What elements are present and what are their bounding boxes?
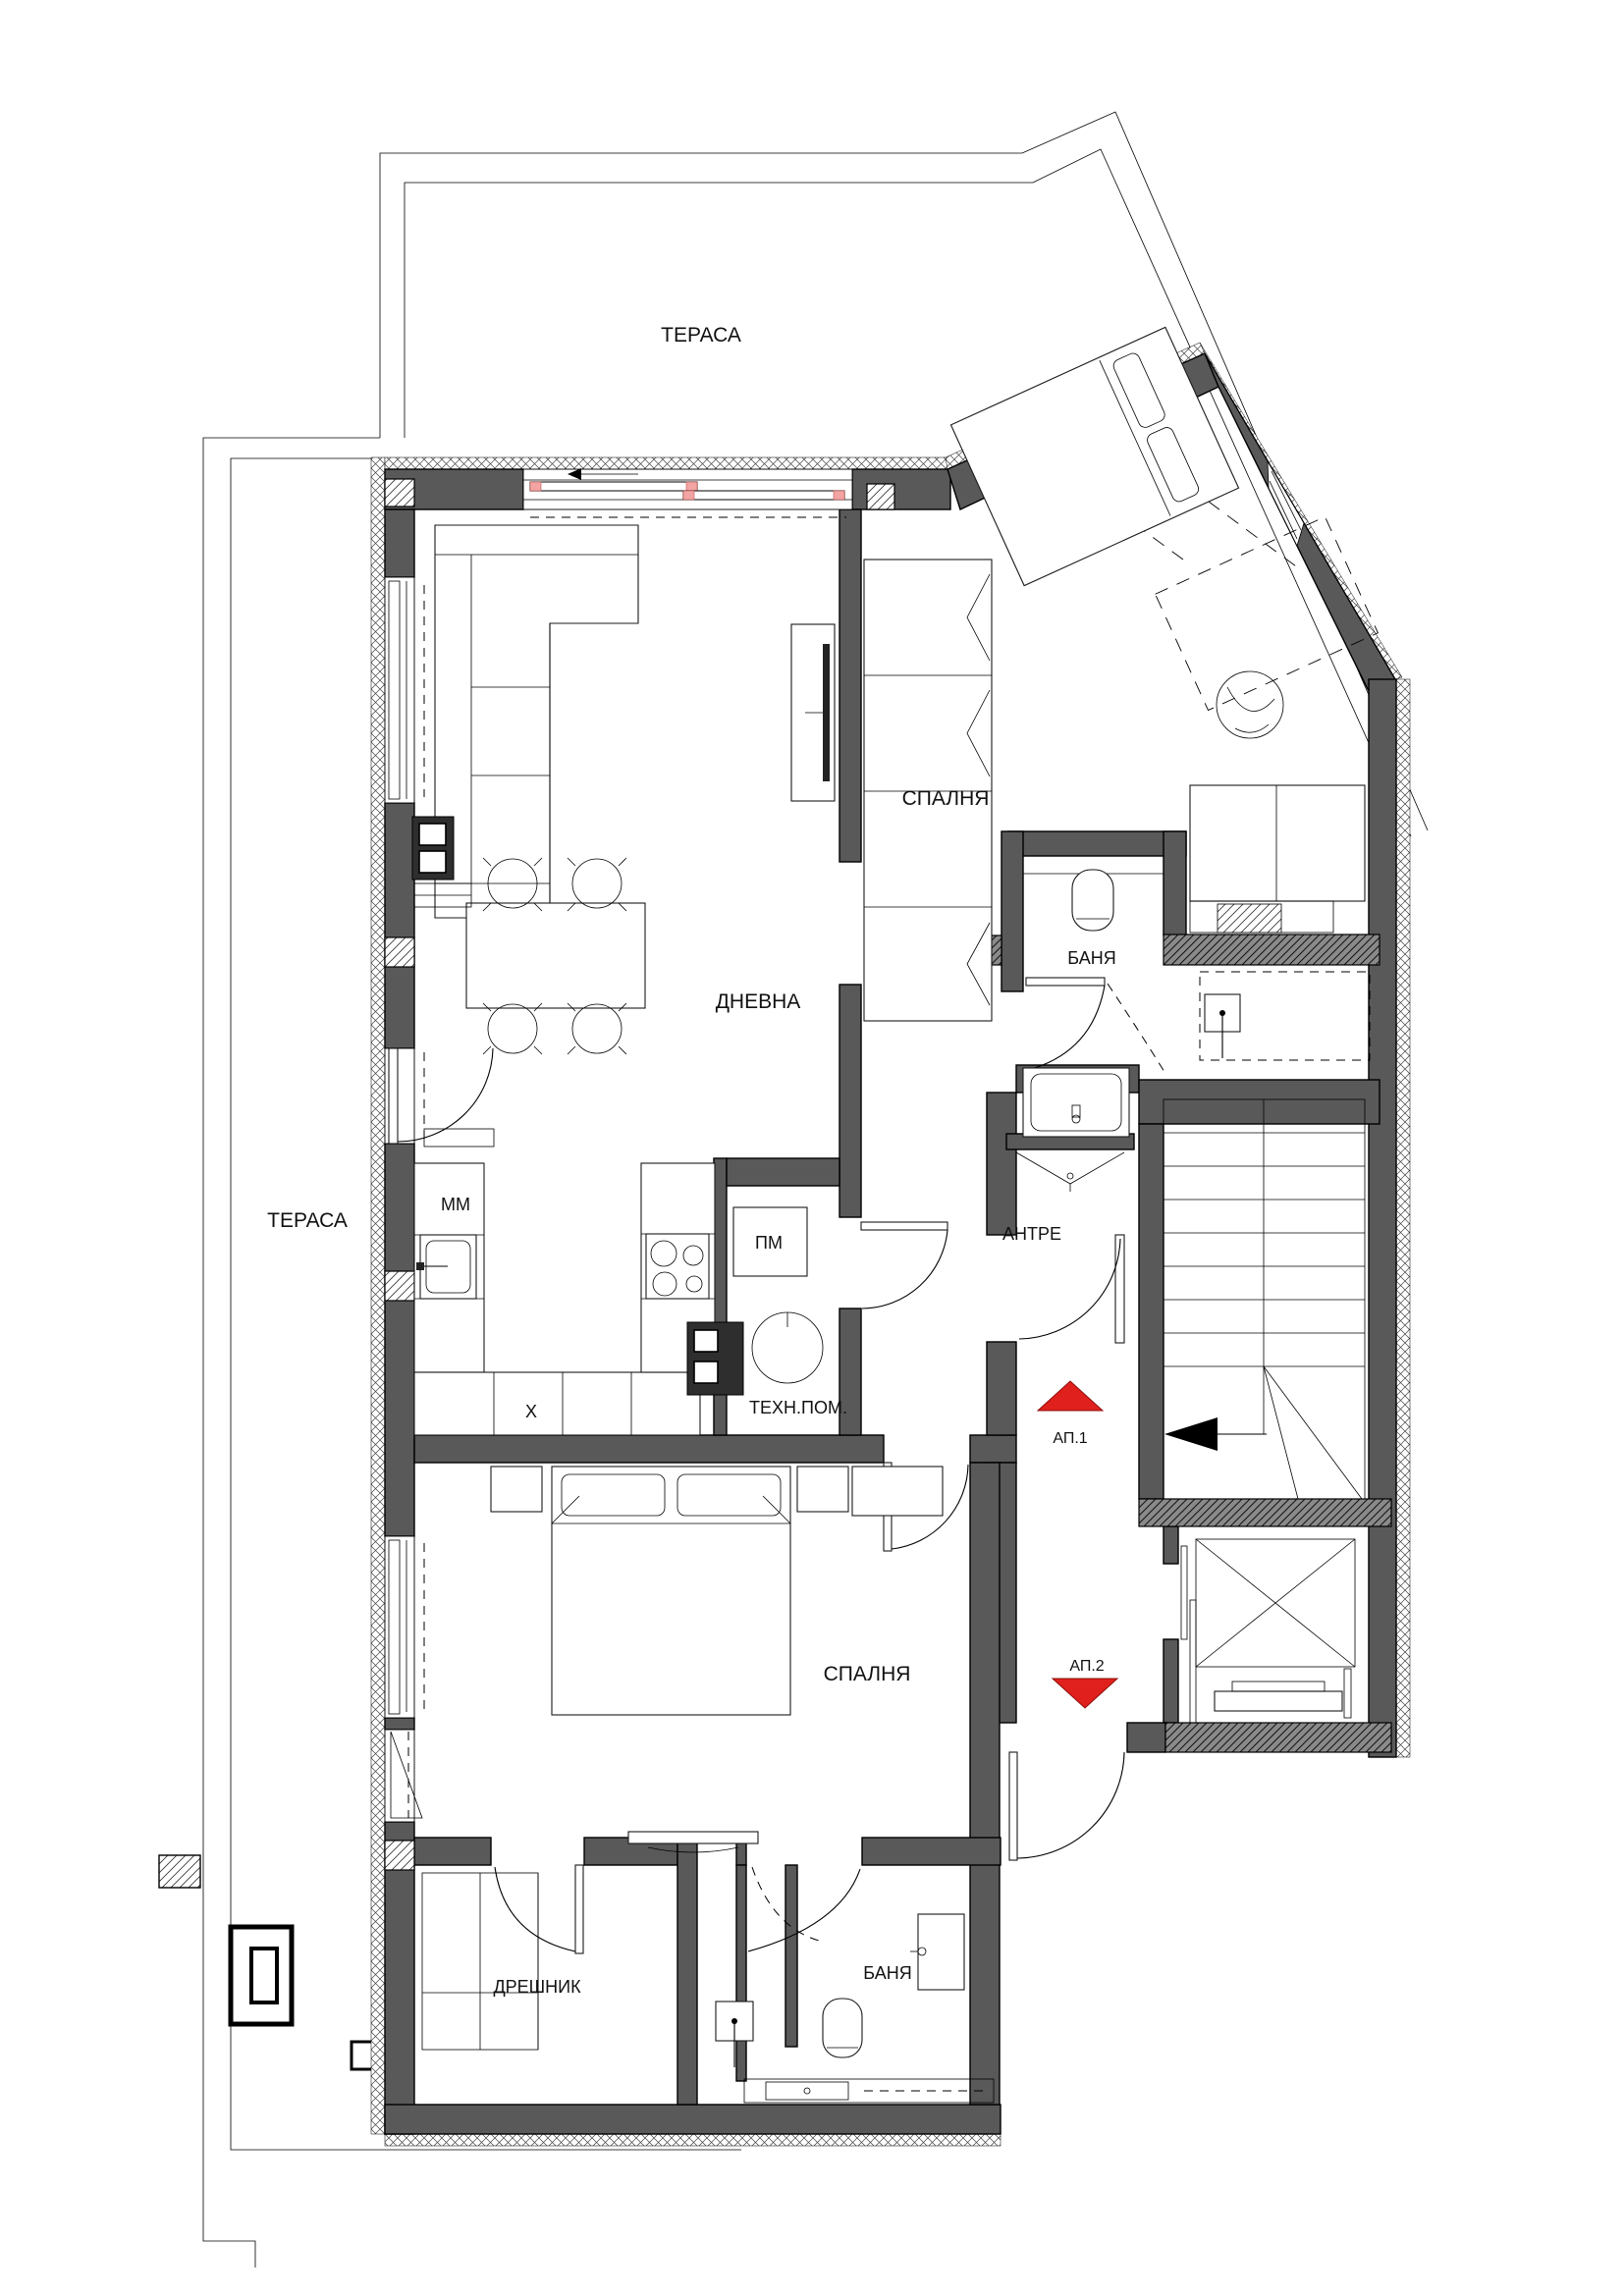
bed-bottom <box>552 1467 790 1715</box>
door-bathroom-top <box>1026 978 1164 1072</box>
window-living <box>385 577 424 803</box>
floor-plan-drawing: ТЕРАСА ТЕРАСА <box>0 0 1624 2296</box>
apartment-1-label: АП.1 <box>1053 1430 1087 1447</box>
toilet-bottom <box>823 1999 862 2057</box>
sliding-door <box>523 468 852 517</box>
tv-living <box>791 624 835 801</box>
cabinet <box>852 1467 943 1516</box>
apartment-1-marker-icon <box>1038 1381 1103 1411</box>
vanity-counter <box>744 2079 994 2103</box>
elevator <box>1181 1539 1355 1723</box>
terrace-top-label: ТЕРАСА <box>661 324 741 347</box>
living-room: ДНЕВНА <box>412 525 835 1054</box>
kitchen-hob <box>646 1234 709 1299</box>
window-bedroom-bottom <box>385 1536 424 1718</box>
nightstand-left <box>491 1467 542 1512</box>
terrace-column-inner <box>251 1949 277 2002</box>
kitchen: ММ Х <box>414 1129 743 1435</box>
nightstand-right <box>797 1467 848 1512</box>
bedroom-bottom: СПАЛНЯ <box>491 1467 943 1852</box>
bedroom-top-label: СПАЛНЯ <box>902 787 990 810</box>
door-apartment-1 <box>1019 1235 1124 1343</box>
living-room-label: ДНЕВНА <box>716 990 801 1013</box>
door-bedroom-terrace <box>385 1730 422 1822</box>
bedroom-top: СПАЛНЯ <box>864 327 1378 1021</box>
door-tech-room <box>861 1222 947 1308</box>
cabinet-bath <box>910 1914 964 1990</box>
bathroom-bottom-label: БАНЯ <box>863 1963 911 1983</box>
bedroom-bottom-label: СПАЛНЯ <box>824 1663 911 1685</box>
kitchen-sink <box>416 1235 476 1299</box>
shower-top <box>1200 972 1370 1060</box>
dining-table <box>466 903 645 1008</box>
toilet-top <box>1072 870 1113 931</box>
tech-room-label: ТЕХН.ПОМ. <box>749 1398 847 1417</box>
terrace-left-label: ТЕРАСА <box>267 1209 348 1232</box>
door-bathroom-bottom <box>748 1867 860 1951</box>
tech-room: ПМ ТЕХН.ПОМ. <box>733 1207 847 1417</box>
door-living-terrace <box>385 1048 493 1144</box>
window-diagonal <box>1268 461 1304 546</box>
closet-label: ДРЕШНИК <box>493 1977 581 1997</box>
tech-pm-label: ПМ <box>755 1233 783 1253</box>
kitchen-x-label: Х <box>525 1402 537 1421</box>
door-apartment-2 <box>1009 1752 1124 1860</box>
duct-unit-kitchen <box>687 1322 743 1395</box>
bathroom-top-label: БАНЯ <box>1067 948 1115 968</box>
apartment-2-label: АП.2 <box>1069 1658 1104 1675</box>
wardrobe-row <box>1190 785 1365 933</box>
hall-label: АНТРЕ <box>1002 1224 1061 1244</box>
closet: ДРЕШНИК <box>422 1873 581 2050</box>
side-table <box>1217 671 1283 738</box>
apartment-2-marker-icon <box>1053 1679 1117 1708</box>
sink-top <box>1023 1068 1129 1137</box>
coat-hanger <box>1016 1152 1124 1192</box>
door-closet <box>495 1865 583 1953</box>
bathroom-bottom: БАНЯ <box>716 1914 994 2103</box>
kitchen-mm-label: ММ <box>441 1195 470 1214</box>
shower-bottom <box>716 2002 753 2067</box>
terrace-pillar <box>159 1855 200 1888</box>
floor-plan-page: ТЕРАСА ТЕРАСА <box>0 0 1624 2296</box>
stairs-direction-arrow-icon <box>1164 1417 1218 1451</box>
